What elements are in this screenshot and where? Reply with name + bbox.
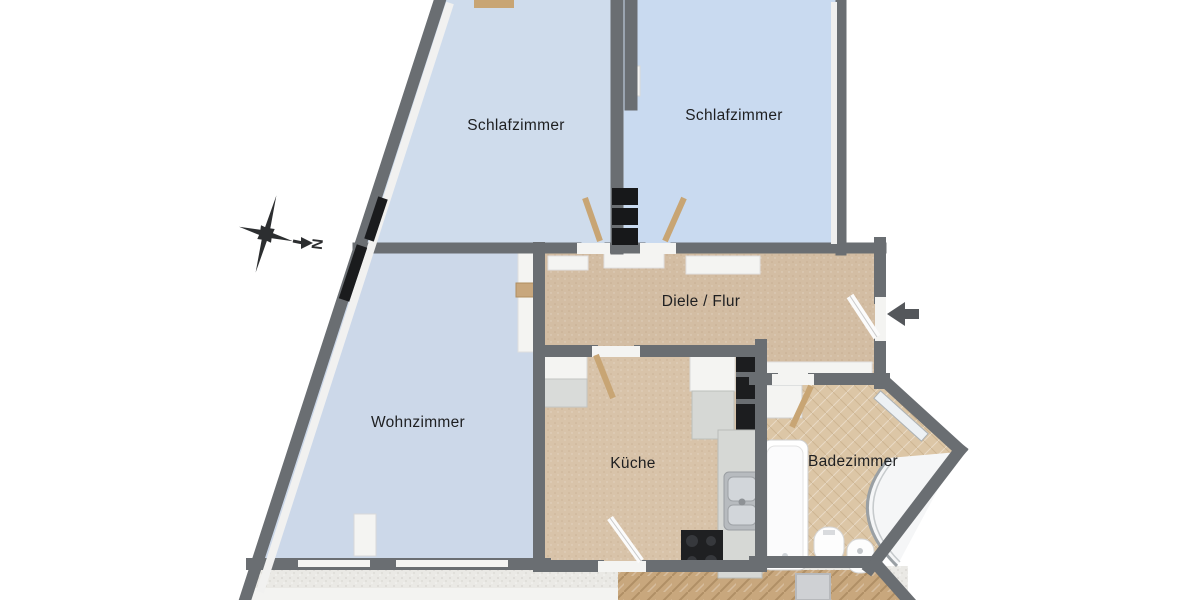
living-bottom-window	[298, 560, 370, 567]
living-radiator	[354, 514, 376, 556]
sink-basin	[728, 505, 756, 525]
door-threshold	[640, 243, 676, 254]
shaft-panel	[612, 188, 638, 205]
living-bottom-window	[396, 560, 508, 567]
doormat	[796, 574, 830, 600]
shaft-panel	[612, 228, 638, 245]
burner	[706, 536, 716, 546]
hall-sideboard-1	[548, 256, 588, 270]
room-label-badezimmer: Badezimmer	[808, 453, 898, 471]
faucet	[739, 499, 746, 506]
toilet-button	[823, 530, 835, 535]
sink-basin	[728, 477, 756, 501]
room-label-diele-flur: Diele / Flur	[662, 293, 741, 311]
kitchen-appliance	[541, 379, 587, 407]
balcony-door-threshold	[598, 561, 646, 572]
shaft-panel	[612, 208, 638, 225]
room-label-kueche: Küche	[610, 455, 655, 473]
floor-plan: N Schlafzimmer Schlafzimmer Diele / Flur…	[0, 0, 1200, 600]
room-floor-wohnzimmer	[253, 243, 545, 568]
compass-star	[239, 195, 293, 272]
entrance-arrow-icon	[887, 302, 919, 326]
compass-rose: N	[239, 195, 326, 272]
bedroom-window-vent	[474, 0, 514, 8]
bathtub-basin	[767, 446, 803, 564]
bidet-drain	[857, 548, 863, 554]
hall-cabinet	[686, 256, 760, 274]
room-label-schlafzimmer-left: Schlafzimmer	[467, 117, 564, 135]
burner	[686, 535, 698, 547]
room-label-wohnzimmer: Wohnzimmer	[371, 414, 465, 432]
balcony-wood-deck	[618, 570, 910, 600]
door-threshold	[577, 243, 610, 254]
bath-door-threshold	[772, 374, 814, 385]
room-label-schlafzimmer-right: Schlafzimmer	[685, 107, 782, 125]
floor-plan-drawing: N	[0, 0, 1200, 600]
room-floor-schlafzimmer-right	[624, 0, 846, 252]
compass-north-label: N	[307, 238, 325, 251]
balcony-white-edge	[245, 588, 618, 600]
